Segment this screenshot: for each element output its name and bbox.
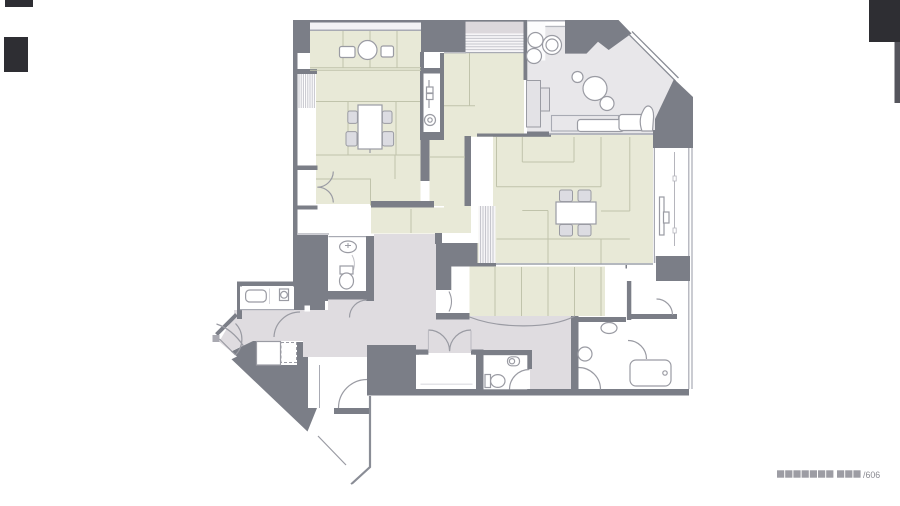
svg-text:/606: /606	[863, 470, 880, 480]
